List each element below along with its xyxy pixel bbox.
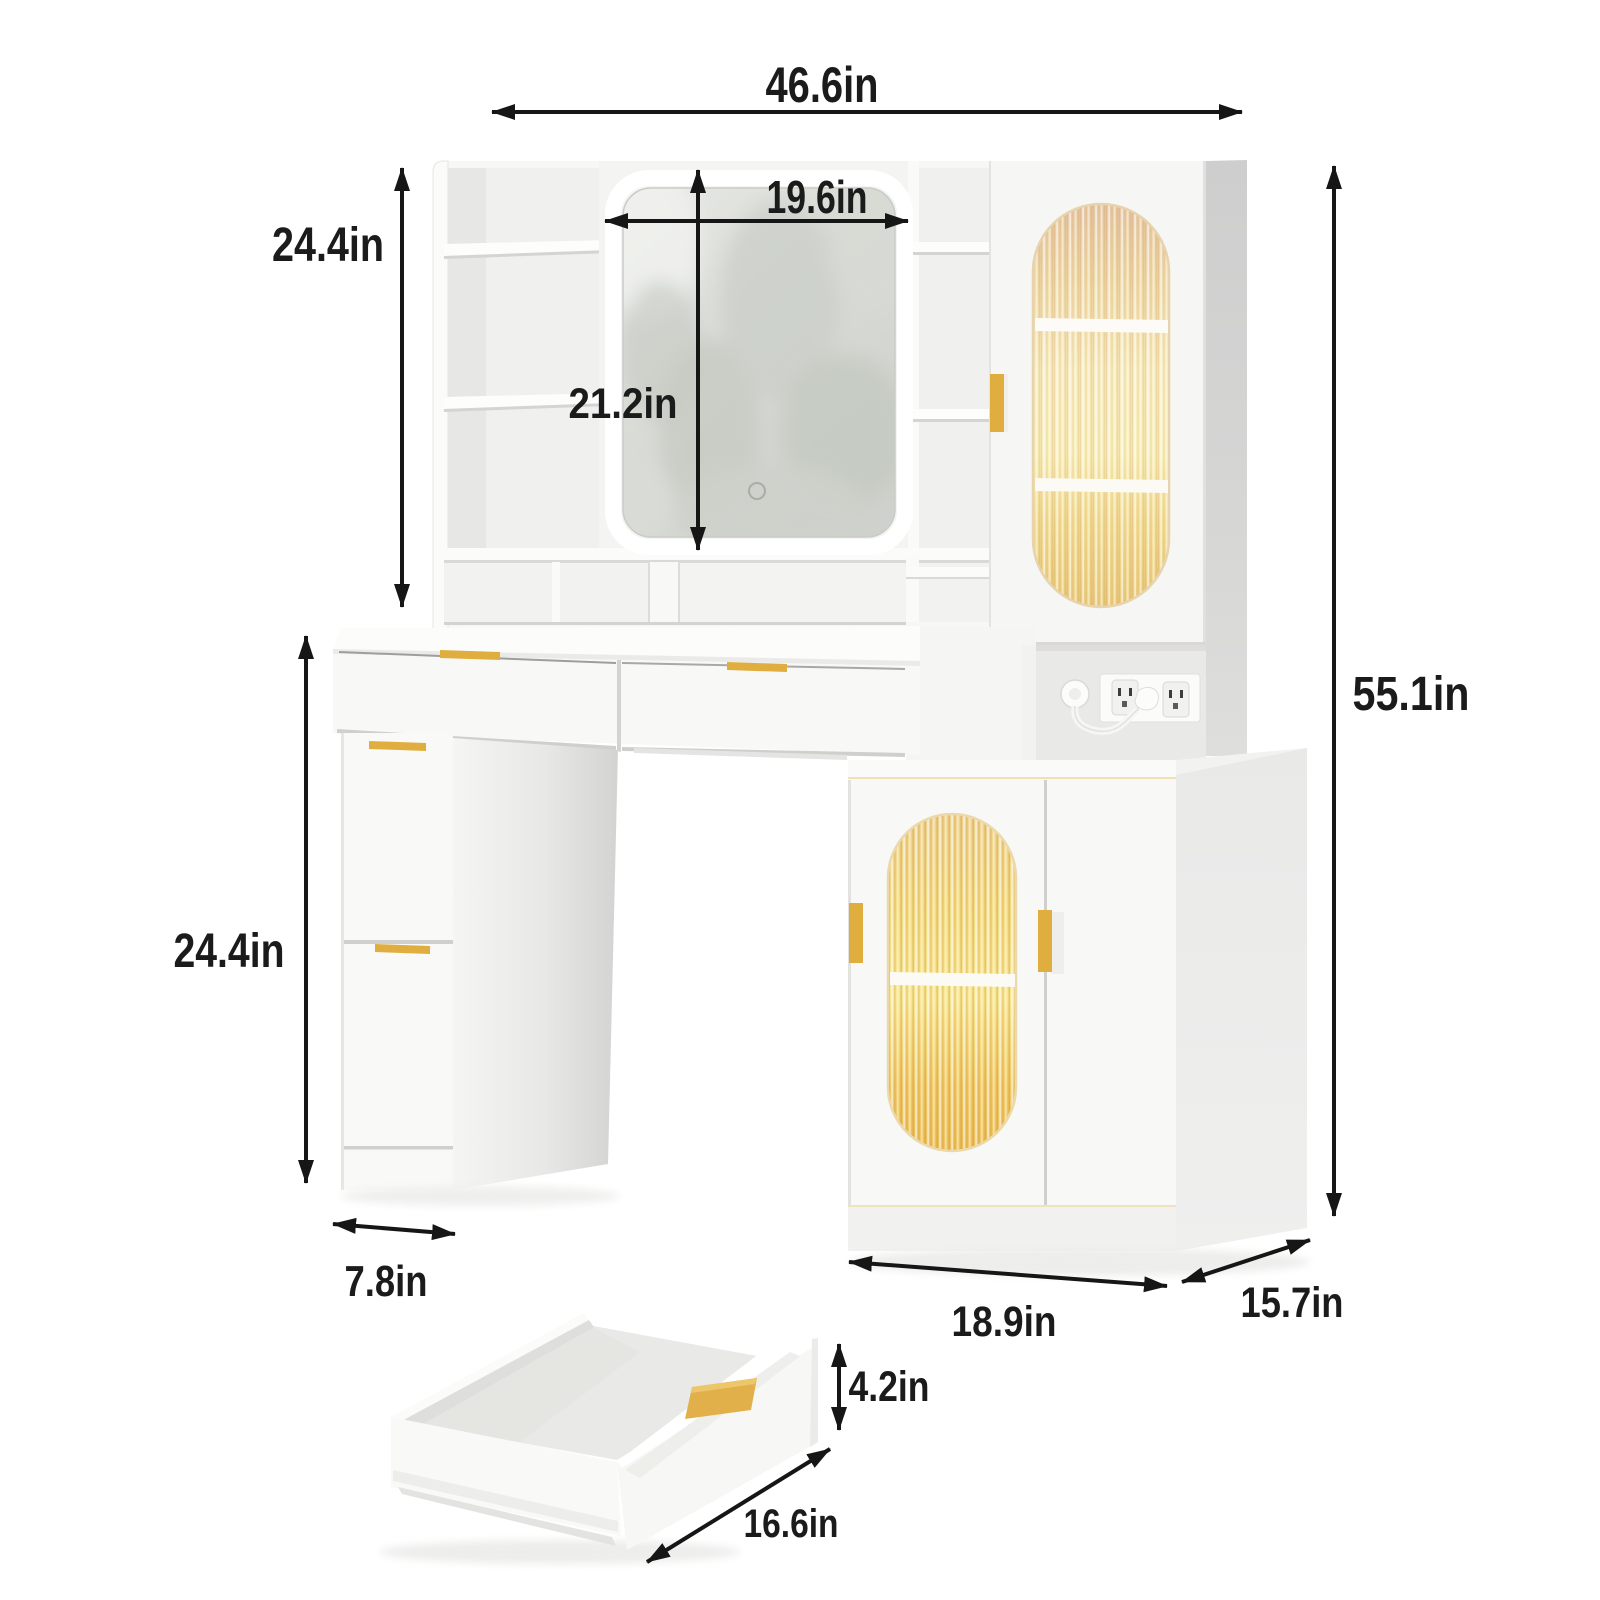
- svg-text:55.1in: 55.1in: [1353, 668, 1470, 721]
- svg-text:21.2in: 21.2in: [569, 380, 678, 428]
- svg-text:24.4in: 24.4in: [174, 925, 285, 978]
- svg-text:24.4in: 24.4in: [272, 219, 384, 272]
- svg-text:7.8in: 7.8in: [345, 1257, 428, 1306]
- svg-text:15.7in: 15.7in: [1241, 1279, 1344, 1327]
- svg-text:18.9in: 18.9in: [952, 1298, 1057, 1346]
- svg-text:4.2in: 4.2in: [849, 1363, 930, 1411]
- svg-text:16.6in: 16.6in: [744, 1502, 839, 1546]
- svg-text:46.6in: 46.6in: [766, 57, 879, 113]
- svg-text:19.6in: 19.6in: [767, 171, 868, 223]
